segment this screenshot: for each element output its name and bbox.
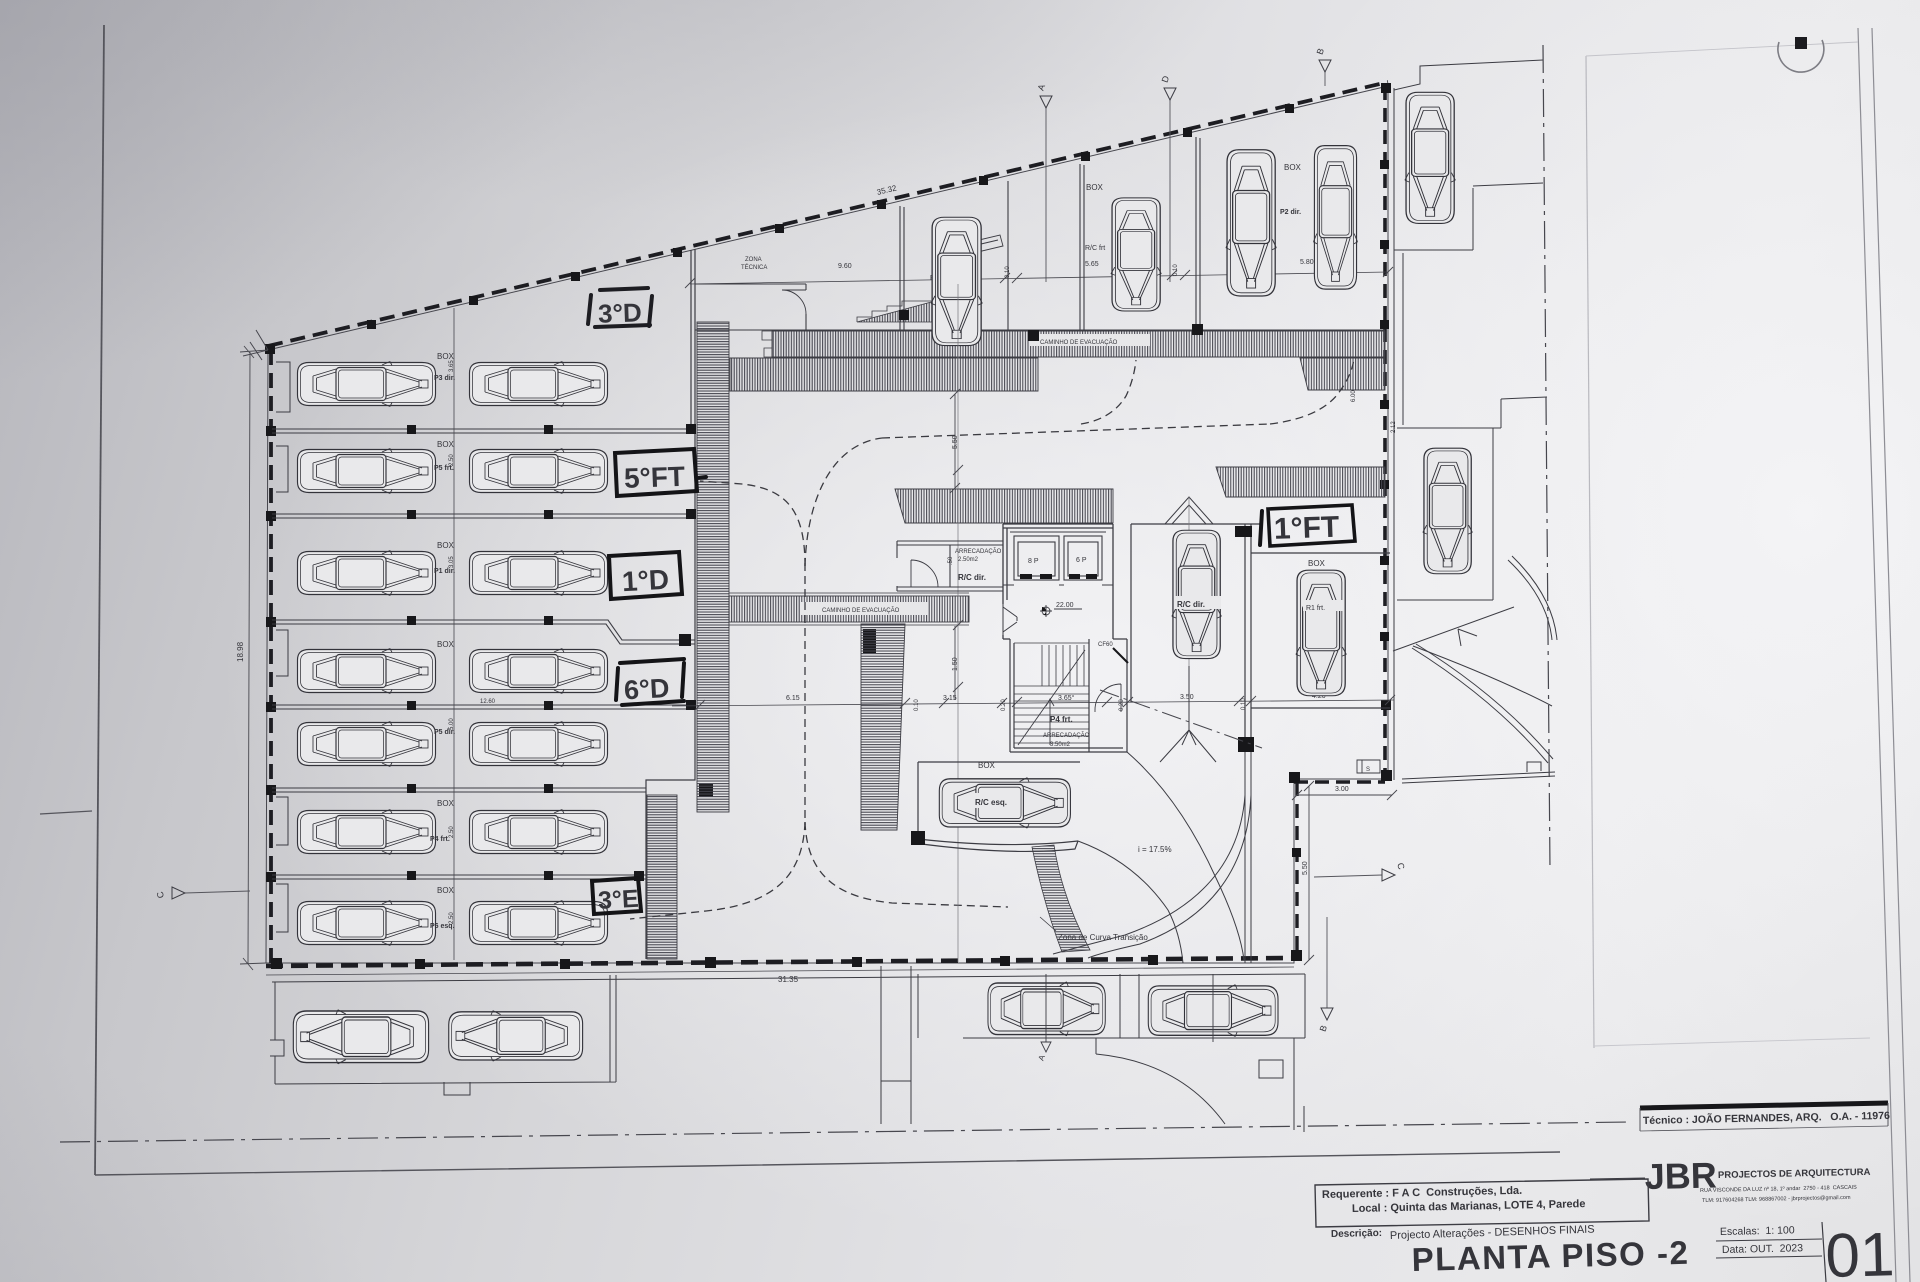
svg-text:2.50m2: 2.50m2	[958, 557, 979, 563]
svg-text:R/C frt: R/C frt	[1085, 245, 1105, 252]
svg-text:B: B	[1315, 47, 1326, 56]
svg-text:22.00: 22.00	[1056, 602, 1074, 609]
svg-text:2.50: 2.50	[449, 912, 455, 924]
svg-text:PROJECTOS DE ARQUITECTURA: PROJECTOS DE ARQUITECTURA	[1718, 1167, 1871, 1181]
svg-text:0.10: 0.10	[1173, 264, 1179, 276]
svg-text:18.98: 18.98	[236, 641, 245, 662]
svg-text:ARRECADAÇÃO: ARRECADAÇÃO	[1043, 732, 1090, 739]
svg-text:BOX: BOX	[1308, 559, 1326, 568]
svg-text:Técnico : JOÃO FERNANDES, ARQ.: Técnico : JOÃO FERNANDES, ARQ. O.A. - 11…	[1643, 1109, 1890, 1127]
svg-text:6 P: 6 P	[1076, 557, 1087, 564]
svg-text:5.80: 5.80	[1300, 259, 1314, 266]
svg-text:.50: .50	[948, 556, 954, 565]
svg-text:Requerente : F A C Construçõe: Requerente : F A C Construções, Lda.	[1322, 1185, 1522, 1201]
svg-text:31.35: 31.35	[778, 975, 799, 984]
svg-text:5.00: 5.00	[449, 718, 455, 730]
svg-text:P1 dir.: P1 dir.	[434, 568, 455, 575]
svg-text:2.50: 2.50	[449, 826, 455, 838]
svg-text:01: 01	[1825, 1220, 1896, 1282]
svg-text:BOX: BOX	[437, 541, 455, 550]
svg-text:3.15: 3.15	[943, 695, 957, 702]
svg-text:CAMINHO DE EVACUAÇÃO: CAMINHO DE EVACUAÇÃO	[1040, 339, 1118, 346]
svg-text:BOX: BOX	[437, 886, 455, 895]
svg-text:BOX: BOX	[437, 640, 455, 649]
svg-text:2.50: 2.50	[449, 454, 455, 466]
svg-text:C: C	[155, 890, 166, 899]
svg-text:R1 frt.: R1 frt.	[1306, 605, 1325, 612]
svg-text:6°D: 6°D	[623, 673, 670, 705]
svg-text:0.10: 0.10	[914, 699, 920, 711]
svg-text:A: A	[1036, 83, 1047, 92]
svg-text:Data: OUT. 2023: Data: OUT. 2023	[1722, 1242, 1804, 1256]
svg-text:Zona de Curva Transição: Zona de Curva Transição	[1058, 933, 1148, 942]
svg-text:12.60: 12.60	[480, 699, 496, 705]
svg-text:3°E: 3°E	[597, 885, 639, 915]
svg-text:Descrição:: Descrição:	[1331, 1228, 1382, 1240]
svg-text:35.32: 35.32	[876, 183, 898, 196]
svg-text:3.50: 3.50	[1180, 694, 1194, 701]
svg-text:0.10: 0.10	[1241, 698, 1247, 710]
svg-text:BOX: BOX	[437, 440, 455, 449]
svg-text:3.65: 3.65	[449, 360, 455, 372]
svg-text:S: S	[1366, 767, 1370, 773]
svg-text:8 P: 8 P	[1028, 558, 1039, 565]
svg-text:P4 frt.: P4 frt.	[1050, 715, 1073, 724]
svg-text:3.05: 3.05	[449, 556, 455, 568]
svg-text:5°FT: 5°FT	[623, 461, 685, 494]
svg-text:1°FT: 1°FT	[1273, 511, 1339, 546]
svg-text:3.00: 3.00	[1335, 786, 1349, 793]
svg-text:3.50m2: 3.50m2	[1050, 742, 1071, 748]
svg-text:Local : Quinta das Marianas, L: Local : Quinta das Marianas, LOTE 4, Par…	[1352, 1198, 1586, 1215]
svg-text:0.20: 0.20	[1119, 699, 1125, 711]
svg-text:i = 17.5%: i = 17.5%	[1138, 845, 1172, 854]
svg-text:BOX: BOX	[1086, 183, 1104, 192]
svg-text:R/C esq.: R/C esq.	[975, 798, 1007, 807]
svg-text:6.00: 6.00	[1351, 390, 1357, 402]
svg-text:R/C dir.: R/C dir.	[1177, 600, 1205, 609]
svg-text:5.50: 5.50	[1302, 861, 1309, 875]
svg-text:Escalas: 1: 100: Escalas: 1: 100	[1720, 1224, 1795, 1238]
svg-text:RUA VISCONDE DA LUZ nº 18, 1º: RUA VISCONDE DA LUZ nº 18, 1º andar 2750…	[1700, 1184, 1857, 1194]
svg-text:9.60: 9.60	[838, 263, 852, 270]
svg-text:6.15: 6.15	[786, 695, 800, 702]
svg-text:1.50: 1.50	[952, 657, 959, 671]
svg-text:BOX: BOX	[978, 761, 996, 770]
svg-text:C: C	[1395, 862, 1406, 871]
svg-text:1°D: 1°D	[621, 564, 670, 597]
svg-text:P4 frt.: P4 frt.	[430, 836, 450, 843]
svg-text:ZONA: ZONA	[745, 257, 762, 263]
svg-text:BOX: BOX	[437, 352, 455, 361]
svg-text:TLM: 917604268 TLM: 968867002: TLM: 917604268 TLM: 968867002 - jbrproje…	[1702, 1195, 1851, 1204]
svg-text:5.50: 5.50	[952, 435, 959, 449]
svg-text:0.20: 0.20	[1001, 699, 1007, 711]
svg-text:D: D	[1160, 74, 1172, 84]
svg-text:B: B	[1318, 1024, 1329, 1033]
svg-text:3°D: 3°D	[598, 297, 643, 329]
svg-text:CAMINHO DE EVACUAÇÃO: CAMINHO DE EVACUAÇÃO	[822, 607, 900, 614]
svg-text:CF60: CF60	[1098, 642, 1113, 648]
svg-text:P3 dir.: P3 dir.	[434, 375, 455, 382]
svg-text:BOX: BOX	[1284, 163, 1302, 172]
svg-text:A: A	[1036, 1053, 1047, 1062]
svg-text:BOX: BOX	[437, 799, 455, 808]
svg-text:5.65: 5.65	[1085, 261, 1099, 268]
svg-text:ARRECADAÇÃO: ARRECADAÇÃO	[955, 548, 1002, 555]
svg-text:PLANTA PISO -2: PLANTA PISO -2	[1411, 1234, 1690, 1278]
svg-text:P2 dir.: P2 dir.	[1280, 209, 1301, 216]
svg-text:R/C dir.: R/C dir.	[958, 573, 986, 582]
svg-text:TÉCNICA: TÉCNICA	[741, 264, 767, 271]
